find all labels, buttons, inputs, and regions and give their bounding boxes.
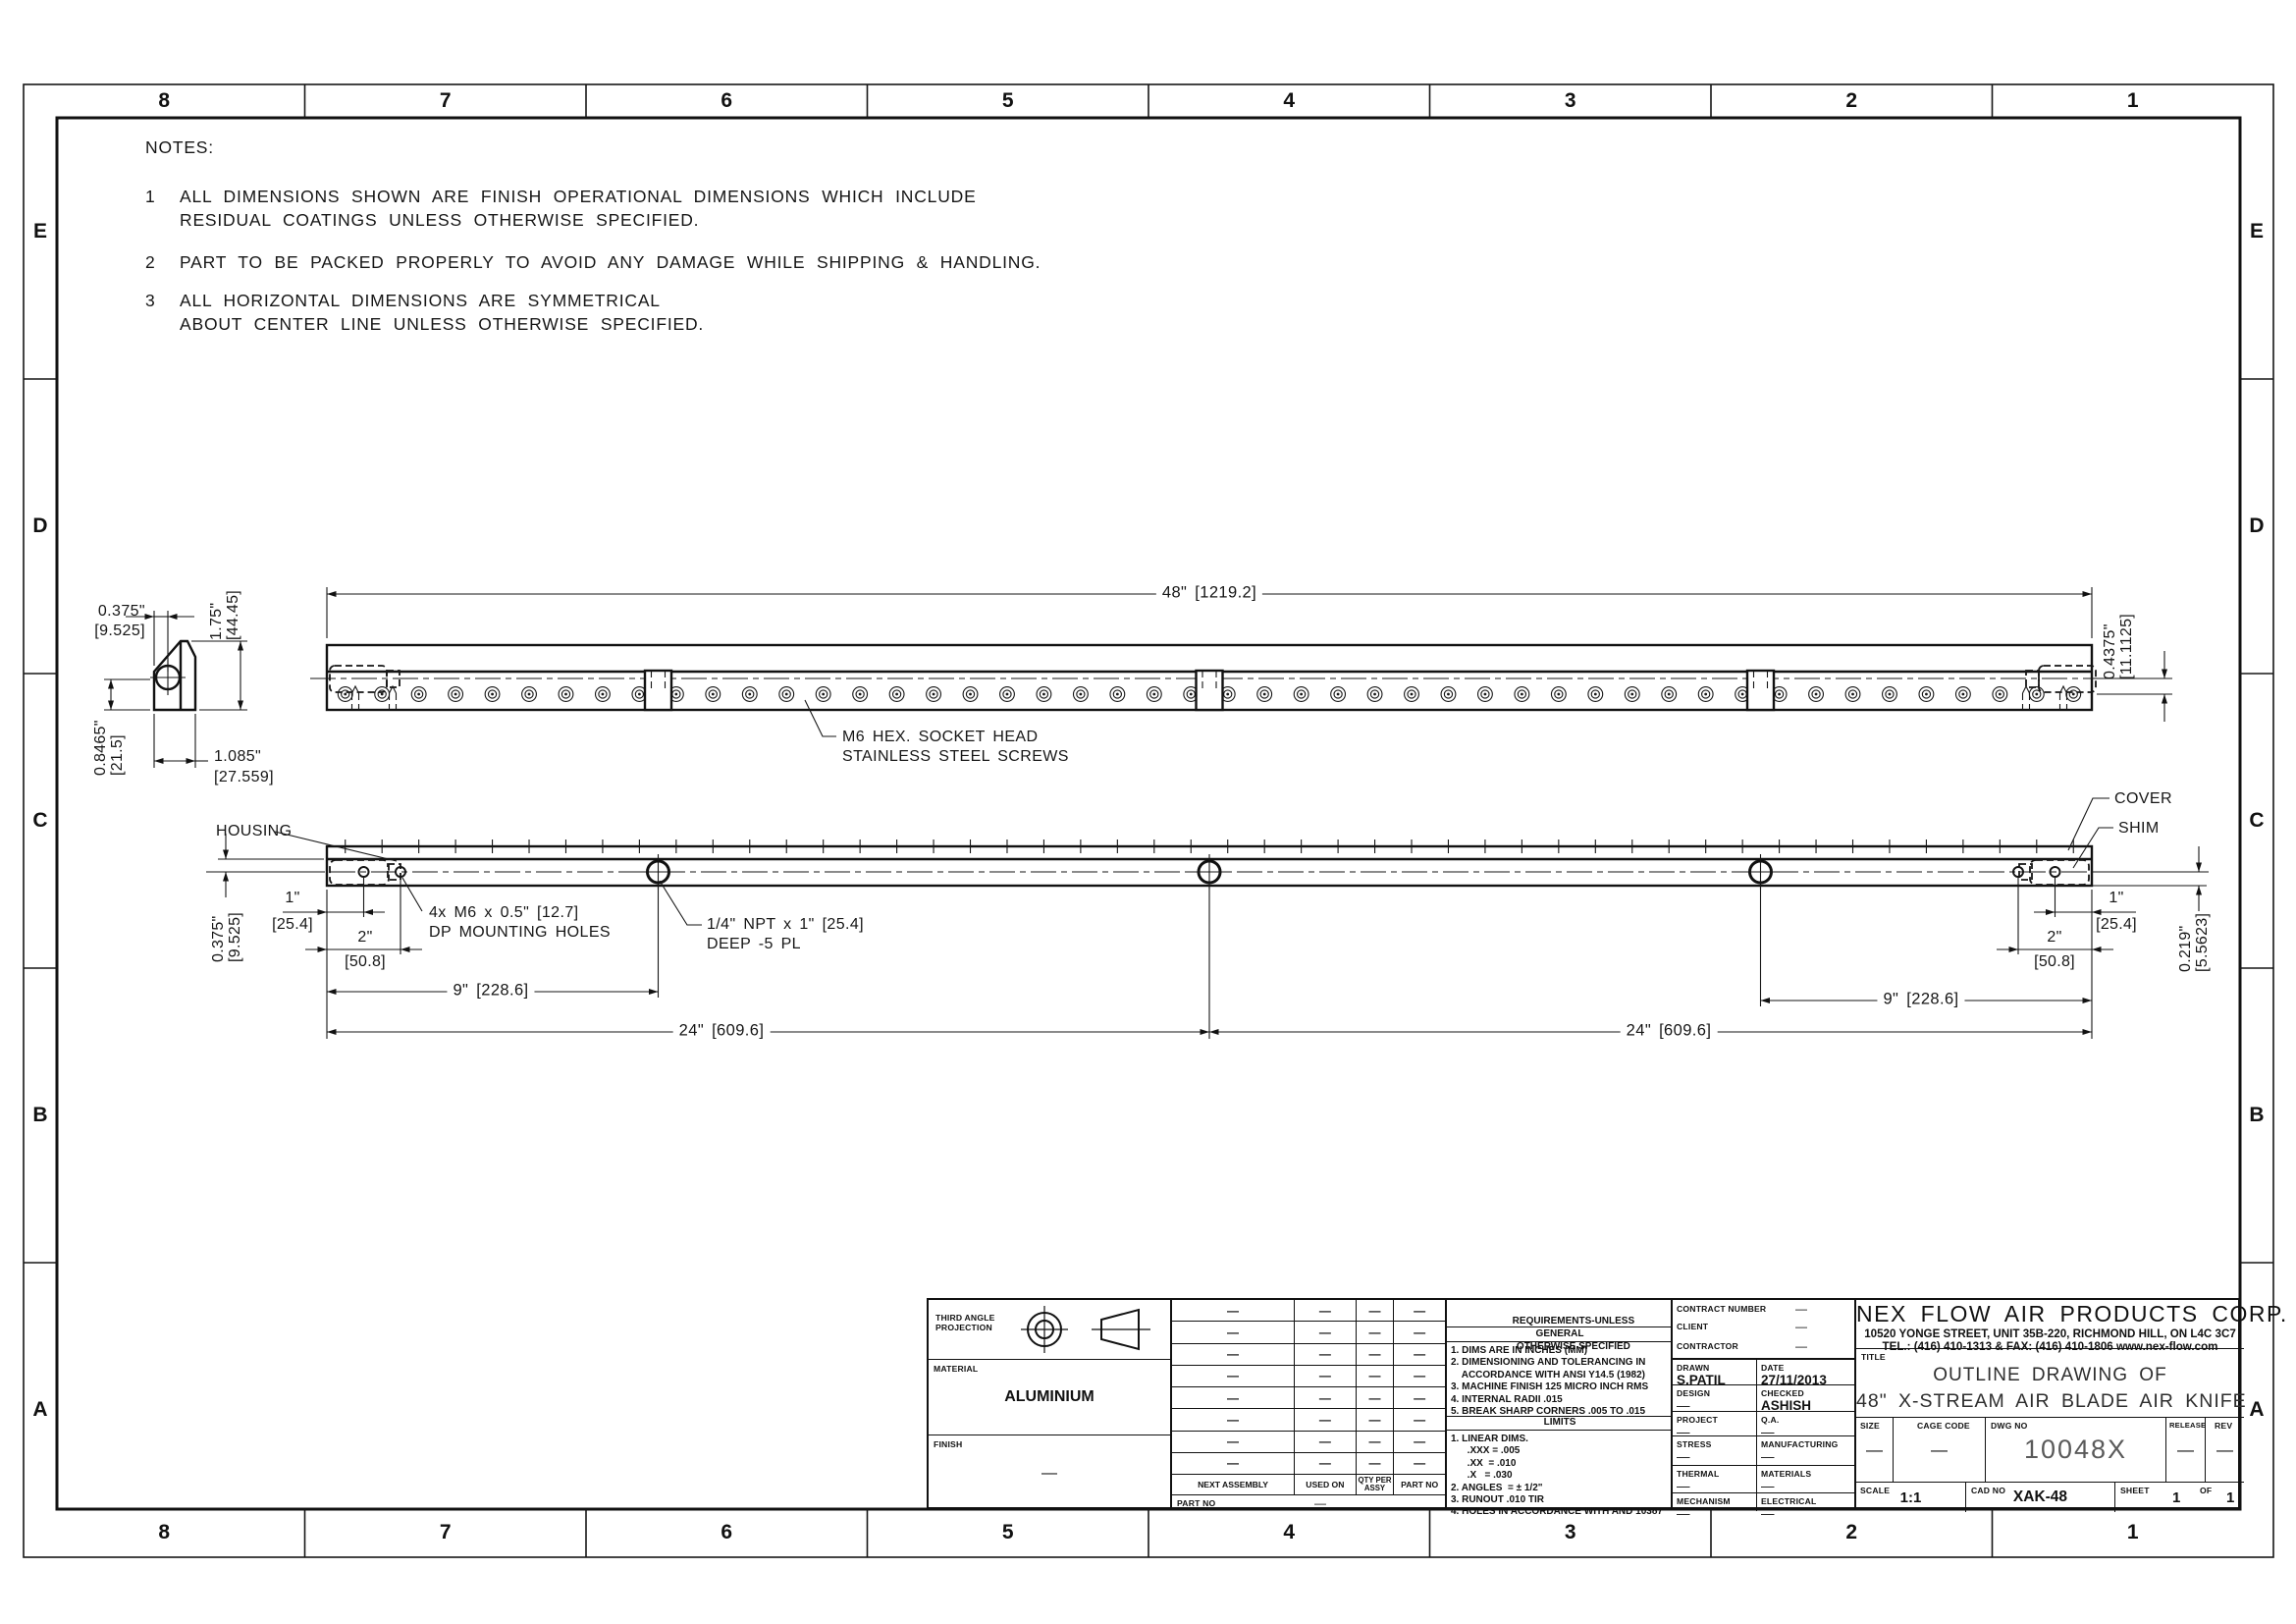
parts-table-cell: — (1356, 1409, 1394, 1430)
zone-column-top-2: 2 (1845, 89, 1857, 113)
parts-table-cell: — (1172, 1387, 1294, 1408)
parts-table-cell: — (1393, 1409, 1445, 1430)
label-housing: HOUSING (216, 823, 292, 840)
part-no-strip: PART NO — (1172, 1495, 1447, 1511)
parts-table-row: ———— (1172, 1366, 1445, 1387)
zone-row-right-D: D (2249, 514, 2264, 538)
screw-note-line-2: STAINLESS STEEL SCREWS (842, 748, 1069, 766)
zone-column-top-1: 1 (2127, 89, 2139, 113)
general-item: 1. DIMS ARE IN INCHES (MM) (1451, 1345, 1671, 1357)
note-3-number: 3 (145, 289, 180, 312)
dim-24-left: 24" [609.6] (673, 1022, 771, 1041)
zone-column-bottom-7: 7 (440, 1521, 452, 1544)
general-item: ACCORDANCE WITH ANSI Y14.5 (1982) (1451, 1370, 1671, 1381)
parts-table-cell: — (1172, 1453, 1294, 1474)
dim-9-left: 9" [228.6] (447, 982, 534, 1001)
admin-row-client: CLIENT — (1673, 1318, 1856, 1337)
parts-table-cell: — (1393, 1366, 1445, 1386)
parts-table-cell: — (1393, 1300, 1445, 1321)
dim-1-left: 1" (285, 889, 299, 908)
header-used-on: USED ON (1294, 1475, 1356, 1494)
projection-label-2: PROJECTION (935, 1323, 992, 1332)
scale-cell: SCALE 1:1 (1856, 1483, 1965, 1512)
rev-value: — (2206, 1418, 2244, 1482)
zone-column-top-8: 8 (158, 89, 170, 113)
general-section-label: GENERAL (1447, 1327, 1673, 1342)
finish-cell: FINISH — (929, 1435, 1170, 1511)
zone-column-bottom-1: 1 (2127, 1521, 2139, 1544)
admin-cell-mechanism: MECHANISM — (1673, 1492, 1756, 1511)
dwg-no-cell: DWG NO 10048X (1985, 1418, 2165, 1482)
zone-row-left-D: D (32, 514, 47, 538)
zone-column-bottom-5: 5 (1002, 1521, 1014, 1544)
zone-column-top-4: 4 (1283, 89, 1295, 113)
admin-cell-date: DATE 27/11/2013 (1756, 1359, 1856, 1384)
header-qty-per-assy: QTY PER ASSY (1356, 1475, 1394, 1494)
parts-table-cell: — (1294, 1432, 1356, 1452)
parts-table-cell: — (1172, 1409, 1294, 1430)
dim-left-vertical: 0.375" [9.525] (210, 912, 243, 962)
title-label: TITLE (1861, 1352, 1886, 1362)
parts-table-row: ———— (1172, 1453, 1445, 1475)
admin-row-contractor: CONTRACTOR — (1673, 1337, 1856, 1359)
admin-row-contract-number: CONTRACT NUMBER — (1673, 1300, 1856, 1318)
projection-cell: THIRD ANGLE PROJECTION (929, 1300, 1170, 1359)
release-value: — (2166, 1418, 2205, 1482)
requirements-header-line-1: REQUIREMENTS-UNLESS (1513, 1316, 1634, 1326)
sheet-total: 1 (2226, 1489, 2234, 1506)
zone-column-bottom-4: 4 (1283, 1521, 1295, 1544)
drawing-title-line-1: OUTLINE DRAWING OF (1856, 1365, 2244, 1386)
zone-row-right-A: A (2249, 1398, 2264, 1422)
dim-2-left-mm: [50.8] (345, 952, 386, 972)
note-3-line-1: ALL HORIZONTAL DIMENSIONS ARE SYMMETRICA… (180, 291, 661, 310)
projection-label-1: THIRD ANGLE (935, 1313, 995, 1323)
company-address: 10520 YONGE STREET, UNIT 35B-220, RICHMO… (1856, 1327, 2244, 1340)
sheet-cell: SHEET 1 OF 1 (2114, 1483, 2244, 1512)
parts-table-row: ———— (1172, 1344, 1445, 1366)
admin-cell-design: DESIGN — (1673, 1384, 1756, 1411)
scale-row: SCALE 1:1 CAD NO XAK-48 SHEET 1 OF 1 (1856, 1482, 2244, 1511)
sheet-label: SHEET (2120, 1486, 2150, 1495)
number-row: SIZE — CAGE CODE — DWG NO 10048X RELEASE… (1856, 1418, 2244, 1482)
limits-item: 1. LINEAR DIMS. (1451, 1434, 1671, 1445)
note-npt-line-2: DEEP -5 PL (707, 936, 801, 953)
parts-table-row: ———— (1172, 1432, 1445, 1453)
header-part-no: PART NO (1393, 1475, 1445, 1494)
dim-9-right: 9" [228.6] (1877, 991, 1964, 1009)
general-item: 4. INTERNAL RADII .015 (1451, 1394, 1671, 1406)
material-value: ALUMINIUM (929, 1360, 1170, 1435)
parts-table-cell: — (1172, 1344, 1294, 1365)
admin-cell-stress: STRESS — (1673, 1435, 1756, 1465)
zone-column-top-7: 7 (440, 89, 452, 113)
parts-table-row: ———— (1172, 1300, 1445, 1322)
scale-value: 1:1 (1856, 1483, 1965, 1512)
dim-section-left: 0.8465" [21.5] (92, 720, 126, 776)
zone-row-right-C: C (2249, 809, 2264, 833)
cage-code-cell: CAGE CODE — (1893, 1418, 1985, 1482)
dim-1-right-mm: [25.4] (2096, 915, 2137, 935)
parts-table-cell: — (1393, 1322, 1445, 1342)
zone-row-left-A: A (32, 1398, 47, 1422)
label-shim: SHIM (2118, 820, 2160, 838)
title-block-col-general: THIRD ANGLE PROJECTION MATERIAL ALUMINIU… (929, 1300, 1170, 1507)
parts-table-cell: — (1356, 1300, 1394, 1321)
parts-table-cell: — (1393, 1453, 1445, 1474)
company-name: NEX FLOW AIR PRODUCTS CORP. (1856, 1301, 2244, 1327)
note-1-line-1: ALL DIMENSIONS SHOWN ARE FINISH OPERATIO… (180, 187, 977, 206)
zone-row-right-E: E (2250, 220, 2264, 244)
sheet-of-label: OF (2200, 1486, 2212, 1495)
zone-row-left-C: C (32, 809, 47, 833)
admin-cell-q-a-: Q.A. — (1756, 1411, 1856, 1435)
parts-table-cell: — (1172, 1366, 1294, 1386)
rev-cell: REV — (2205, 1418, 2244, 1482)
size-cell: SIZE — (1856, 1418, 1893, 1482)
admin-cell-project: PROJECT — (1673, 1411, 1756, 1435)
parts-table-cell: — (1294, 1409, 1356, 1430)
parts-table-cell: — (1294, 1322, 1356, 1342)
parts-table-cell: — (1356, 1453, 1394, 1474)
title-block: THIRD ANGLE PROJECTION MATERIAL ALUMINIU… (927, 1298, 2240, 1509)
dwg-no-value: 10048X (1986, 1418, 2165, 1482)
zone-column-bottom-8: 8 (158, 1521, 170, 1544)
notes-block: NOTES: 1ALL DIMENSIONS SHOWN ARE FINISH … (145, 137, 1041, 336)
top-view-geometry (310, 587, 2172, 736)
release-cell: RELEASE — (2165, 1418, 2205, 1482)
general-items: 1. DIMS ARE IN INCHES (MM)2. DIMENSIONIN… (1451, 1345, 1671, 1418)
note-3-line-2: ABOUT CENTER LINE UNLESS OTHERWISE SPECI… (180, 314, 704, 334)
drawing-title-cell: TITLE OUTLINE DRAWING OF 48" X-STREAM AI… (1856, 1349, 2244, 1418)
note-1-line-2: RESIDUAL COATINGS UNLESS OTHERWISE SPECI… (180, 210, 699, 230)
zone-row-left-E: E (33, 220, 47, 244)
parts-table-cell: — (1294, 1387, 1356, 1408)
zone-column-bottom-6: 6 (721, 1521, 732, 1544)
dim-24-right: 24" [609.6] (1621, 1022, 1718, 1041)
note-item-2: 2PART TO BE PACKED PROPERLY TO AVOID ANY… (145, 250, 1041, 274)
zone-row-right-B: B (2249, 1104, 2264, 1127)
company-header: NEX FLOW AIR PRODUCTS CORP. 10520 YONGE … (1856, 1300, 2244, 1349)
cad-no-cell: CAD NO XAK-48 (1965, 1483, 2114, 1512)
part-no-label: PART NO (1177, 1498, 1215, 1508)
note-2-line-1: PART TO BE PACKED PROPERLY TO AVOID ANY … (180, 252, 1041, 272)
parts-table-cell: — (1172, 1300, 1294, 1321)
limits-item: .X = .030 (1451, 1470, 1671, 1482)
dim-2-right: 2" (2047, 928, 2061, 947)
limits-item: 3. RUNOUT .010 TIR (1451, 1494, 1671, 1506)
parts-table-cell: — (1356, 1387, 1394, 1408)
title-block-col-requirements: REQUIREMENTS-UNLESS OTHERWISE SPECIFIED … (1445, 1300, 1671, 1507)
sheet-value: 1 (2172, 1489, 2180, 1506)
dim-section-height: 1.75" [44.45] (208, 590, 241, 640)
label-cover: COVER (2114, 790, 2172, 808)
drawing-title-line-2: 48" X-STREAM AIR BLADE AIR KNIFE (1856, 1390, 2244, 1413)
note-holes-line-1: 4x M6 x 0.5" [12.7] (429, 904, 578, 922)
parts-table-row: ———— (1172, 1387, 1445, 1409)
parts-table-cell: — (1393, 1344, 1445, 1365)
general-item: 2. DIMENSIONING AND TOLERANCING IN (1451, 1357, 1671, 1369)
limits-item: .XX = .010 (1451, 1458, 1671, 1470)
dim-1-left-mm: [25.4] (272, 915, 313, 935)
admin-cell-materials: MATERIALS — (1756, 1465, 1856, 1492)
zone-column-top-6: 6 (721, 89, 732, 113)
dim-2-left: 2" (357, 928, 372, 947)
note-npt-line-1: 1/4" NPT x 1" [25.4] (707, 916, 864, 934)
dim-overall-length: 48" [1219.2] (1156, 584, 1262, 603)
parts-table-cell: — (1356, 1366, 1394, 1386)
note-item-3: 3ALL HORIZONTAL DIMENSIONS ARE SYMMETRIC… (145, 289, 1041, 336)
dim-right-height: 0.4375" [11.1125] (2102, 614, 2135, 679)
dim-section-top: 0.375" [9.525] (59, 602, 145, 641)
title-block-col-parts: ———————————————————————————————— NEXT AS… (1170, 1300, 1445, 1507)
parts-table-cell: — (1172, 1432, 1294, 1452)
parts-table-cell: — (1294, 1453, 1356, 1474)
screw-note-line-1: M6 HEX. SOCKET HEAD (842, 729, 1038, 746)
admin-cell-manufacturing: MANUFACTURING — (1756, 1435, 1856, 1465)
parts-table-cell: — (1172, 1322, 1294, 1342)
cage-code-value: — (1894, 1418, 1985, 1482)
dim-section-width: 1.085" [27.559] (214, 746, 274, 787)
title-block-col-company: NEX FLOW AIR PRODUCTS CORP. 10520 YONGE … (1854, 1300, 2242, 1507)
admin-cell-checked: CHECKED ASHISH (1756, 1384, 1856, 1411)
size-value: — (1856, 1418, 1893, 1482)
part-no-value: — (1314, 1496, 1326, 1510)
limits-item: 2. ANGLES = ± 1/2" (1451, 1483, 1671, 1494)
limits-item: 4. HOLES IN ACCORDANCE WITH AND 10387 (1451, 1506, 1671, 1518)
parts-table-cell: — (1294, 1300, 1356, 1321)
parts-table-row: ———— (1172, 1322, 1445, 1343)
parts-table-header: NEXT ASSEMBLY USED ON QTY PER ASSY PART … (1172, 1475, 1445, 1495)
parts-table-cell: — (1294, 1366, 1356, 1386)
dim-right-vertical: 0.219" [5.5623] (2177, 913, 2211, 972)
limits-items: 1. LINEAR DIMS. .XXX = .005 .XX = .010 .… (1451, 1434, 1671, 1519)
header-next-assembly: NEXT ASSEMBLY (1172, 1475, 1294, 1494)
drawing-sheet: .s1{stroke:#161616;stroke-width:1.1;fill… (0, 0, 2296, 1624)
note-holes-line-2: DP MOUNTING HOLES (429, 924, 611, 942)
limits-section-label: LIMITS (1447, 1416, 1673, 1431)
parts-table-cell: — (1356, 1344, 1394, 1365)
note-2-number: 2 (145, 250, 180, 274)
general-item: 3. MACHINE FINISH 125 MICRO INCH RMS (1451, 1381, 1671, 1393)
dim-2-right-mm: [50.8] (2034, 952, 2075, 972)
note-1-number: 1 (145, 185, 180, 208)
parts-table-cell: — (1356, 1432, 1394, 1452)
finish-value: — (929, 1435, 1170, 1511)
cad-no-value: XAK-48 (1966, 1483, 2114, 1512)
title-block-col-admin: CONTRACT NUMBER —CLIENT —CONTRACTOR — DR… (1671, 1300, 1854, 1507)
material-cell: MATERIAL ALUMINIUM (929, 1359, 1170, 1435)
parts-table-row: ———— (1172, 1409, 1445, 1431)
admin-cell-electrical: ELECTRICAL — (1756, 1492, 1856, 1511)
zone-column-bottom-3: 3 (1565, 1521, 1576, 1544)
parts-table-cell: — (1294, 1344, 1356, 1365)
parts-table-cell: — (1393, 1387, 1445, 1408)
zone-column-top-3: 3 (1565, 89, 1576, 113)
admin-cell-drawn: DRAWN S.PATIL (1673, 1359, 1756, 1384)
notes-heading: NOTES: (145, 137, 1041, 158)
note-item-1: 1ALL DIMENSIONS SHOWN ARE FINISH OPERATI… (145, 185, 1041, 232)
zone-column-bottom-2: 2 (1845, 1521, 1857, 1544)
parts-table-cell: — (1356, 1322, 1394, 1342)
admin-cell-thermal: THERMAL — (1673, 1465, 1756, 1492)
parts-table-cell: — (1393, 1432, 1445, 1452)
limits-item: .XXX = .005 (1451, 1445, 1671, 1457)
zone-column-top-5: 5 (1002, 89, 1014, 113)
requirements-header: REQUIREMENTS-UNLESS OTHERWISE SPECIFIED (1447, 1300, 1673, 1327)
dim-1-right: 1" (2109, 889, 2123, 908)
zone-row-left-B: B (32, 1104, 47, 1127)
